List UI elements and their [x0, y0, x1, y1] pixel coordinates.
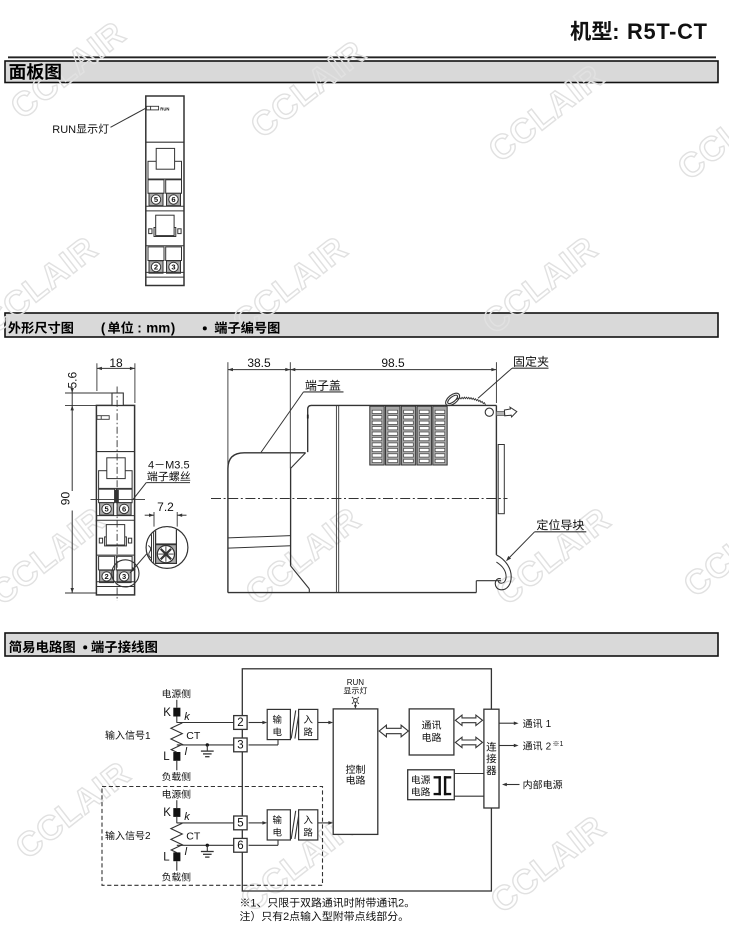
- svg-text:3: 3: [171, 263, 175, 272]
- svg-text:RUN: RUN: [160, 106, 169, 111]
- svg-text:K: K: [163, 707, 171, 719]
- svg-text:CCLAIR: CCLAIR: [244, 33, 373, 146]
- svg-text:mm: mm: [146, 321, 170, 336]
- svg-text:1: 1: [250, 898, 256, 910]
- svg-text:RUN: RUN: [52, 124, 76, 136]
- svg-text:6: 6: [237, 840, 243, 852]
- svg-text:6: 6: [171, 195, 175, 204]
- svg-text:7.2: 7.2: [157, 500, 174, 514]
- svg-text:2: 2: [398, 898, 404, 910]
- svg-text:k: k: [184, 811, 190, 823]
- svg-text:1: 1: [560, 741, 564, 748]
- svg-text:l: l: [185, 846, 188, 858]
- svg-text:CT: CT: [186, 830, 201, 842]
- svg-text:CT: CT: [186, 730, 201, 742]
- svg-text:CCLAIR: CCLAIR: [484, 808, 613, 921]
- svg-text:4: 4: [148, 460, 154, 472]
- svg-text:): ): [171, 321, 176, 336]
- svg-text:3: 3: [237, 740, 243, 752]
- svg-text:M3.5: M3.5: [165, 460, 189, 472]
- svg-text:K: K: [163, 807, 171, 819]
- svg-text::: :: [137, 321, 142, 336]
- svg-text:CCLAIR: CCLAIR: [239, 500, 368, 613]
- svg-text:2: 2: [237, 717, 243, 729]
- svg-text:CCLAIR: CCLAIR: [671, 75, 729, 188]
- svg-text:2: 2: [154, 263, 158, 272]
- svg-text:2: 2: [283, 911, 289, 923]
- svg-text:2: 2: [546, 742, 552, 753]
- svg-text:l: l: [185, 746, 188, 758]
- svg-text:90: 90: [59, 492, 73, 506]
- svg-text:RUN: RUN: [347, 678, 365, 687]
- svg-text:5.6: 5.6: [65, 371, 79, 388]
- svg-text:L: L: [163, 852, 170, 864]
- svg-text:L: L: [163, 751, 170, 763]
- svg-text:1: 1: [145, 731, 151, 742]
- svg-text:2: 2: [145, 831, 151, 842]
- svg-text:k: k: [184, 711, 190, 723]
- svg-text:6: 6: [122, 505, 126, 514]
- svg-text:3: 3: [122, 572, 126, 581]
- svg-text:2: 2: [104, 572, 108, 581]
- svg-text:5: 5: [237, 818, 243, 830]
- svg-text:CCLAIR: CCLAIR: [489, 500, 618, 613]
- svg-text:CCLAIR: CCLAIR: [9, 754, 138, 867]
- svg-text:CCLAIR: CCLAIR: [677, 492, 729, 605]
- svg-text:1: 1: [546, 719, 552, 730]
- svg-text:38.5: 38.5: [247, 356, 271, 370]
- svg-text:: R5T-CT: : R5T-CT: [612, 19, 707, 44]
- svg-text:98.5: 98.5: [381, 356, 405, 370]
- svg-text:(: (: [101, 321, 106, 336]
